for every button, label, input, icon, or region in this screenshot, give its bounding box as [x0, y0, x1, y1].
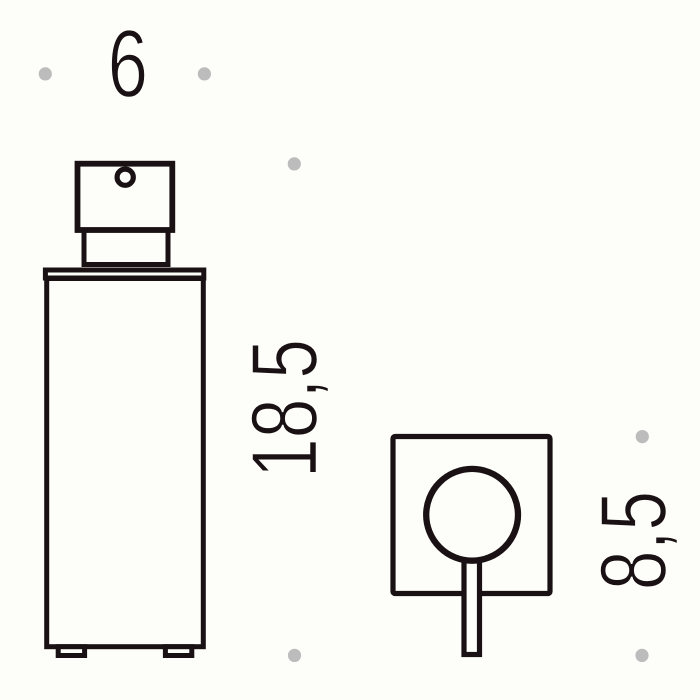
svg-text:8,5: 8,5	[580, 491, 686, 590]
svg-text:6: 6	[108, 10, 148, 117]
svg-text:18,5: 18,5	[231, 339, 337, 478]
